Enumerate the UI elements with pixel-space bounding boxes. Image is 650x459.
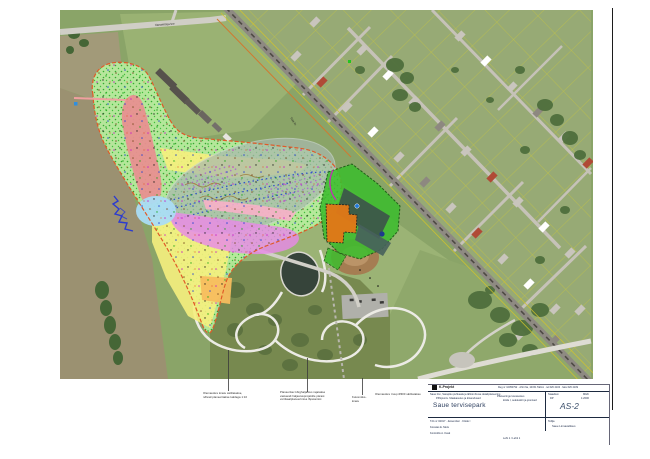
volume-note-1: Planeeringu koosseisus [497, 395, 524, 398]
frame-border-right [612, 8, 613, 410]
map-note-2: Planeeritav kõrghaljastus rajatakse vast… [280, 391, 338, 402]
parking-lot [341, 293, 388, 319]
project-subtitle: Põhijoonis. Maakasutus ja kitsendused [436, 397, 481, 400]
drawing-sheet: Vanamõisa tee Tule tn Olemasolev kraav s… [0, 0, 650, 459]
map-note-3-right: Olemasolev truup Ø300 säilitatakse [375, 393, 425, 397]
project-name: Saue linn, Sarapiku puhkeala ja lähiümbr… [430, 393, 500, 396]
volume-note-2: köide I, seletuskiri ja joonised [503, 399, 537, 402]
aerial-map: Vanamõisa tee Tule tn [60, 10, 593, 379]
sheet-number: AS-2 [560, 401, 579, 411]
company-logo [432, 385, 437, 390]
sheet-count: Leht 1 / Lehti 1 [503, 437, 520, 440]
blue-marker-square [74, 102, 78, 106]
blue-point-marker [355, 204, 359, 208]
note-leader-3 [362, 378, 363, 395]
green-marker-square [348, 60, 351, 63]
author-line-1: Koostas E. Mets [430, 426, 449, 429]
work-number-line: Töö nr 02017 · detsember · Köide I [430, 420, 470, 423]
map-note-1: Olemasolev kraav säilitatakse, nõlvad pl… [203, 392, 261, 399]
client-value: Saue Linnavalitsus [552, 425, 575, 428]
map-note-3: Kuivendus- kraav [352, 396, 374, 403]
scale-value: 1:2000 [581, 397, 589, 400]
note-leader-1 [228, 350, 229, 391]
author-line-2: Kontrollis A. Kask [430, 432, 450, 435]
company-name: K-Projekt [439, 385, 454, 389]
drawing-title: Saue tervisepark [433, 402, 486, 409]
client-label: Tellija [548, 420, 555, 423]
stage-label: Staadium [548, 393, 559, 396]
scale-label: Mõõt [583, 393, 589, 396]
road-junction [449, 352, 475, 368]
stage-value: DP [550, 397, 554, 400]
company-contact: Reg nr 10050792 · Ahtri 6a, 10151 Tallin… [498, 386, 606, 389]
note-leader-2 [307, 358, 308, 392]
